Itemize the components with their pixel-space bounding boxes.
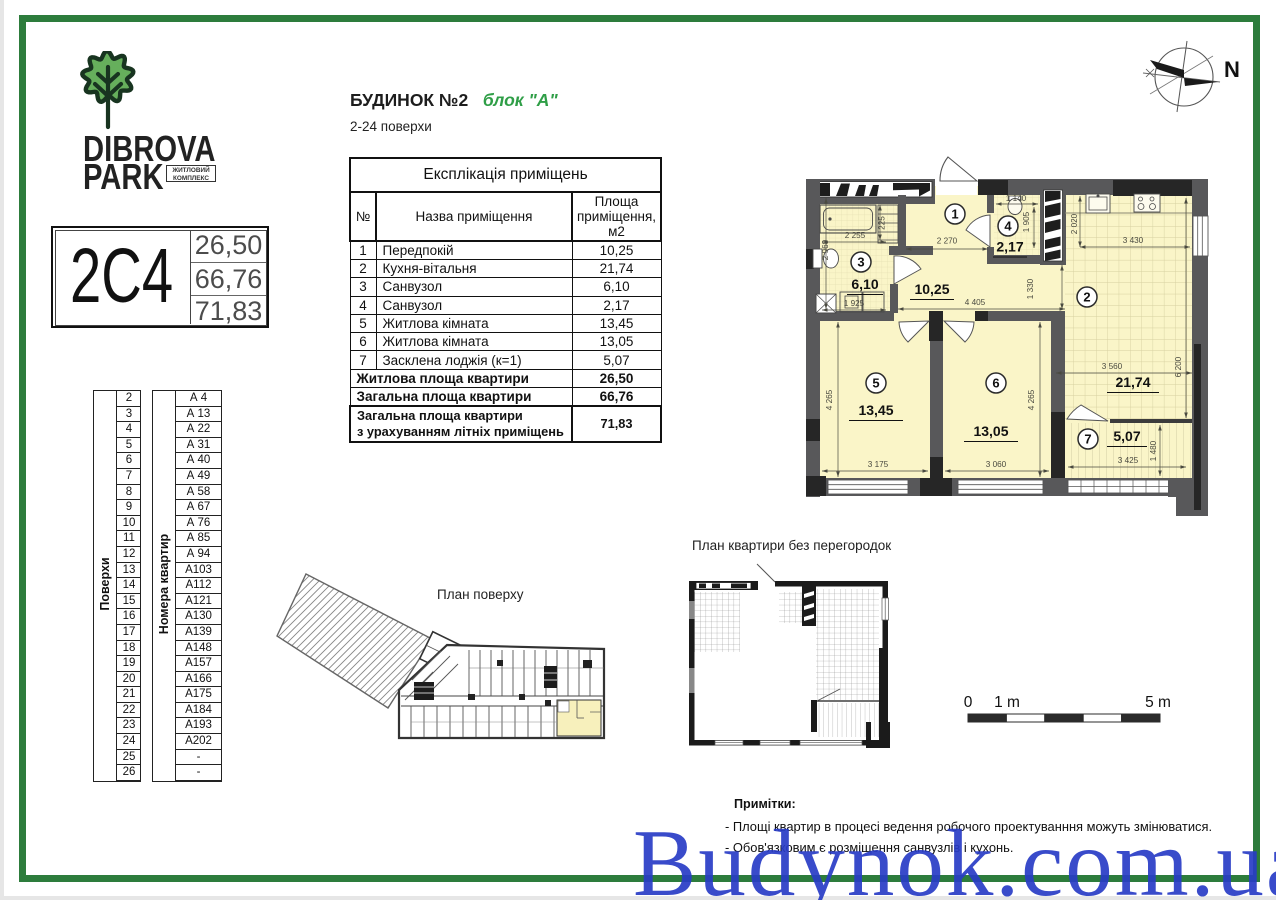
svg-text:6 200: 6 200: [1174, 356, 1183, 377]
svg-text:1 480: 1 480: [1149, 440, 1158, 461]
svg-text:2 960: 2 960: [821, 239, 830, 260]
svg-text:1 905: 1 905: [1022, 211, 1031, 232]
svg-text:1 925: 1 925: [844, 299, 865, 308]
svg-text:4 405: 4 405: [965, 298, 986, 307]
svg-text:3 425: 3 425: [1118, 456, 1139, 465]
svg-text:2 255: 2 255: [845, 231, 866, 240]
svg-text:4 265: 4 265: [1027, 389, 1036, 410]
svg-text:0: 0: [964, 694, 973, 711]
svg-text:13,45: 13,45: [858, 402, 893, 418]
svg-text:5,07: 5,07: [1113, 428, 1140, 444]
svg-text:1 330: 1 330: [1026, 278, 1035, 299]
svg-text:225: 225: [878, 216, 887, 230]
svg-text:10,25: 10,25: [914, 281, 949, 297]
svg-text:6,10: 6,10: [851, 276, 878, 292]
svg-text:5: 5: [872, 376, 879, 391]
svg-text:21,74: 21,74: [1115, 374, 1150, 390]
svg-text:3 560: 3 560: [1102, 362, 1123, 371]
svg-text:2 020: 2 020: [1070, 213, 1079, 234]
svg-text:13,05: 13,05: [973, 423, 1008, 439]
svg-text:7: 7: [1084, 432, 1091, 447]
svg-text:3: 3: [857, 255, 864, 270]
svg-text:2 270: 2 270: [937, 237, 958, 246]
svg-text:1: 1: [951, 207, 958, 222]
svg-text:3 175: 3 175: [868, 460, 889, 469]
svg-text:3 060: 3 060: [986, 460, 1007, 469]
svg-text:6: 6: [992, 376, 999, 391]
svg-text:2,17: 2,17: [996, 239, 1023, 255]
svg-text:5 m: 5 m: [1145, 694, 1171, 711]
svg-text:4 265: 4 265: [825, 389, 834, 410]
svg-text:3 430: 3 430: [1123, 236, 1144, 245]
svg-text:2: 2: [1083, 290, 1090, 305]
svg-text:1 m: 1 m: [994, 694, 1020, 711]
svg-text:1 140: 1 140: [1006, 194, 1027, 203]
svg-text:4: 4: [1004, 219, 1012, 234]
